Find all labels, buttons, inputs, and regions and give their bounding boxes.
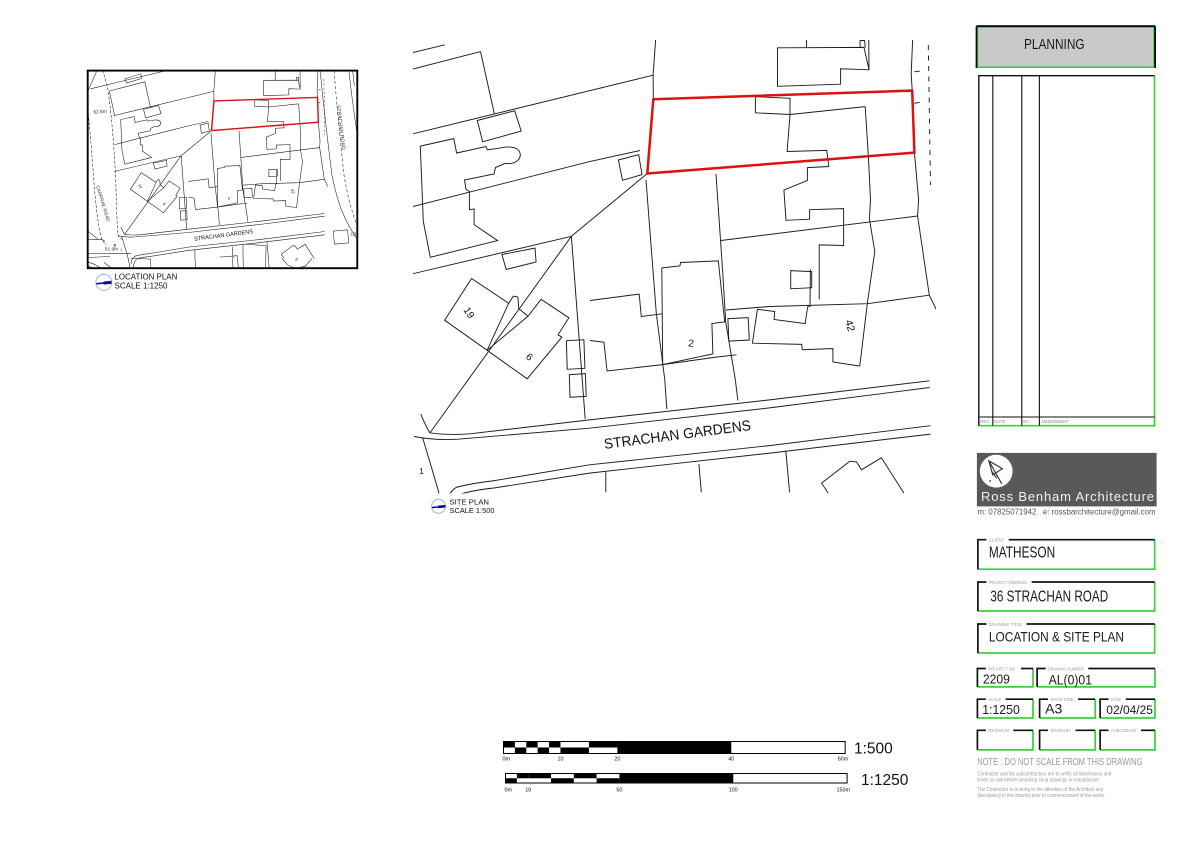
svg-text:PLANNING: PLANNING bbox=[1024, 37, 1085, 53]
svg-text:discrepancy in this drawing pr: discrepancy in this drawing prior to com… bbox=[977, 793, 1105, 799]
svg-text:1:500: 1:500 bbox=[854, 741, 893, 758]
svg-text:1:1250: 1:1250 bbox=[861, 772, 909, 789]
svg-text:100: 100 bbox=[729, 788, 738, 794]
svg-text:SCALE 1:1250: SCALE 1:1250 bbox=[115, 281, 169, 290]
svg-text:150m: 150m bbox=[837, 788, 851, 794]
svg-text:CHECKED BY: CHECKED BY bbox=[1111, 728, 1137, 733]
svg-text:02/04/25: 02/04/25 bbox=[1106, 703, 1153, 717]
svg-text:BY: BY bbox=[1023, 419, 1029, 424]
svg-text:0m: 0m bbox=[503, 757, 511, 763]
svg-text:MATHESON: MATHESON bbox=[989, 545, 1055, 562]
svg-text:1: 1 bbox=[419, 467, 424, 476]
svg-text:10: 10 bbox=[558, 757, 564, 763]
svg-text:DRAWN BY: DRAWN BY bbox=[1051, 728, 1071, 733]
svg-text:LOCATION & SITE PLAN: LOCATION & SITE PLAN bbox=[989, 630, 1124, 645]
svg-text:Ross Benham Architecture: Ross Benham Architecture bbox=[981, 489, 1154, 504]
svg-text:m: 07825071942 e: rossbarchi: m: 07825071942 e: rossbarchitecture@gmai… bbox=[978, 507, 1156, 516]
svg-text:0m: 0m bbox=[505, 788, 513, 794]
svg-text:levels on site before preparin: levels on site before preparing shop dra… bbox=[977, 778, 1100, 784]
svg-text:NOTE : DO NOT SCALE FROM THIS: NOTE : DO NOT SCALE FROM THIS DRAWING bbox=[977, 757, 1142, 768]
svg-text:10: 10 bbox=[525, 788, 531, 794]
svg-text:36 STRACHAN ROAD: 36 STRACHAN ROAD bbox=[990, 589, 1108, 606]
svg-text:62.8m: 62.8m bbox=[93, 109, 107, 116]
svg-text:A3: A3 bbox=[1045, 701, 1062, 716]
svg-text:LOCATION PLAN: LOCATION PLAN bbox=[115, 273, 178, 282]
svg-text:61.9m: 61.9m bbox=[105, 246, 118, 252]
svg-text:1: 1 bbox=[120, 248, 122, 252]
svg-text:DATE: DATE bbox=[1111, 697, 1121, 702]
svg-text:20: 20 bbox=[614, 757, 620, 763]
svg-text:60m: 60m bbox=[838, 757, 849, 763]
svg-text:DATE: DATE bbox=[994, 419, 1005, 424]
svg-text:LB: LB bbox=[351, 232, 357, 238]
svg-text:PROJECT NO.: PROJECT NO. bbox=[988, 666, 1016, 671]
svg-text:PROJECT ADDRESS: PROJECT ADDRESS bbox=[989, 580, 1027, 585]
svg-text:REV.: REV. bbox=[980, 419, 990, 424]
svg-text:CLIENT: CLIENT bbox=[989, 538, 1005, 543]
svg-text:AL(0)01: AL(0)01 bbox=[1049, 673, 1092, 688]
svg-text:DRAWING NUMBER: DRAWING NUMBER bbox=[1048, 666, 1084, 671]
svg-text:SCALE 1:500: SCALE 1:500 bbox=[450, 506, 495, 515]
svg-text:DRAWING TITLE: DRAWING TITLE bbox=[989, 622, 1022, 627]
svg-text:2209: 2209 bbox=[983, 672, 1010, 687]
svg-text:40: 40 bbox=[728, 757, 734, 763]
svg-text:1:1250: 1:1250 bbox=[982, 702, 1020, 717]
svg-text:50: 50 bbox=[616, 788, 622, 794]
svg-text:REVISION: REVISION bbox=[988, 728, 1008, 733]
svg-text:AMENDMENT: AMENDMENT bbox=[1041, 419, 1069, 424]
